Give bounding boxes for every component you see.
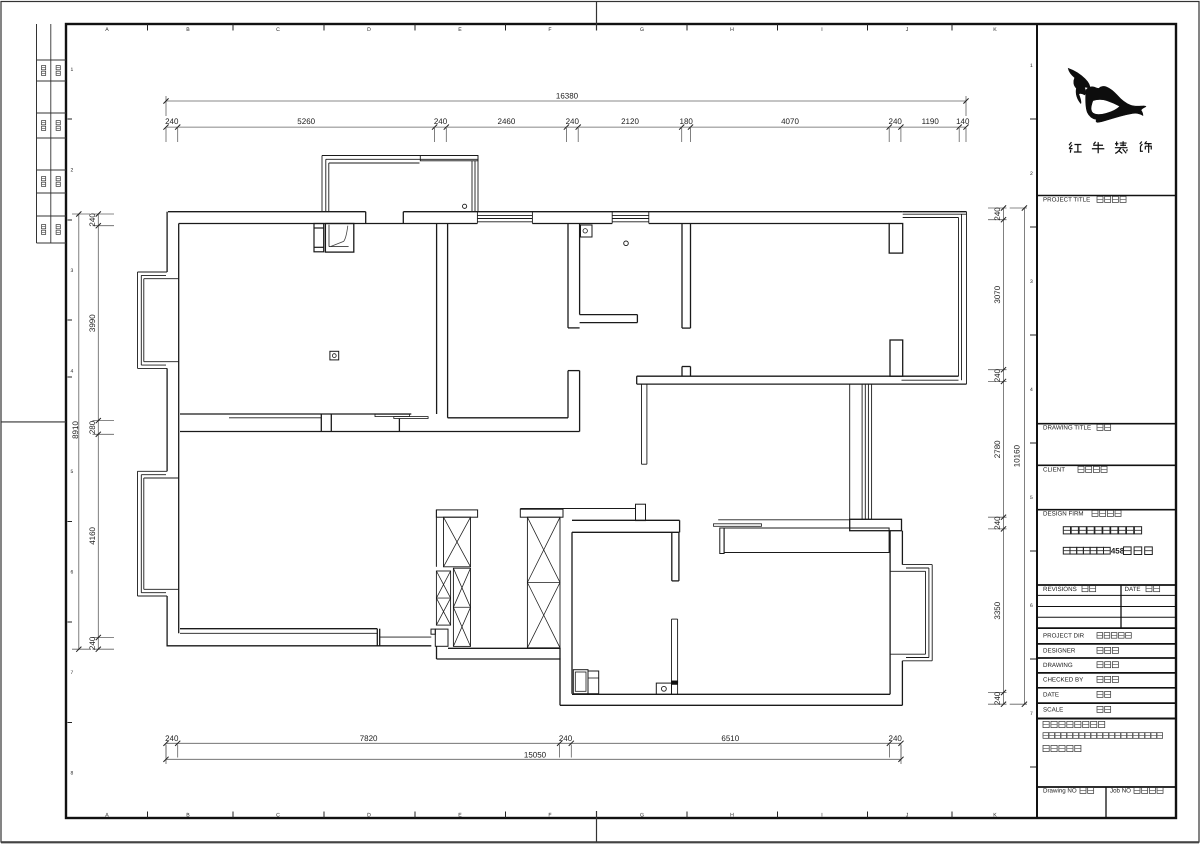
svg-text:K: K [993, 813, 997, 819]
svg-text:240: 240 [559, 734, 573, 743]
svg-text:DESIGNER: DESIGNER [1043, 648, 1076, 655]
svg-text:PROJECT DIR: PROJECT DIR [1043, 633, 1085, 640]
svg-text:D: D [367, 27, 371, 33]
svg-text:15050: 15050 [524, 750, 547, 759]
svg-text:2120: 2120 [621, 117, 639, 126]
svg-text:3: 3 [1030, 279, 1033, 285]
svg-text:I: I [821, 813, 822, 819]
svg-text:C: C [276, 813, 280, 819]
svg-text:2: 2 [71, 168, 74, 174]
svg-text:A: A [105, 27, 109, 33]
svg-text:3070: 3070 [993, 285, 1002, 303]
svg-text:J: J [906, 27, 909, 33]
svg-text:J: J [906, 813, 909, 819]
svg-text:CHECKED BY: CHECKED BY [1043, 677, 1083, 684]
svg-text:G: G [640, 813, 644, 819]
svg-text:240: 240 [165, 117, 179, 126]
svg-text:SCALE: SCALE [1043, 707, 1063, 714]
svg-text:240: 240 [434, 117, 448, 126]
svg-text:8910: 8910 [71, 421, 80, 439]
svg-text:I: I [821, 27, 822, 33]
svg-text:Drawing NO: Drawing NO [1043, 788, 1077, 795]
svg-text:1: 1 [71, 67, 74, 73]
svg-text:CLIENT: CLIENT [1043, 467, 1065, 474]
svg-text:240: 240 [993, 368, 1002, 382]
svg-text:280: 280 [88, 420, 97, 434]
svg-text:6: 6 [71, 570, 74, 576]
svg-text:16380: 16380 [556, 92, 579, 101]
svg-text:E: E [458, 813, 462, 819]
svg-text:DRAWING: DRAWING [1043, 662, 1073, 669]
svg-text:5260: 5260 [297, 117, 315, 126]
svg-text:A: A [105, 813, 109, 819]
svg-text:H: H [730, 27, 734, 33]
svg-text:5: 5 [71, 469, 74, 475]
svg-text:Job NO: Job NO [1110, 788, 1131, 795]
svg-text:DATE: DATE [1125, 586, 1141, 593]
svg-text:240: 240 [889, 734, 903, 743]
svg-text:240: 240 [993, 207, 1002, 221]
svg-text:1: 1 [1030, 63, 1033, 69]
svg-text:7820: 7820 [360, 734, 378, 743]
svg-text:240: 240 [165, 734, 179, 743]
svg-text:8: 8 [71, 771, 74, 777]
svg-text:140: 140 [956, 117, 970, 126]
svg-text:5: 5 [1030, 495, 1033, 501]
svg-text:E: E [458, 27, 462, 33]
svg-text:240: 240 [889, 117, 903, 126]
svg-text:F: F [548, 27, 551, 33]
svg-text:DATE: DATE [1043, 692, 1059, 699]
svg-text:240: 240 [88, 213, 97, 227]
svg-text:6: 6 [1030, 603, 1033, 609]
svg-text:2: 2 [1030, 171, 1033, 177]
svg-text:240: 240 [88, 636, 97, 650]
svg-text:240: 240 [993, 691, 1002, 705]
svg-text:B: B [186, 27, 190, 33]
svg-text:F: F [548, 813, 551, 819]
svg-text:4160: 4160 [88, 526, 97, 544]
svg-text:4: 4 [1030, 387, 1033, 393]
svg-text:D: D [367, 813, 371, 819]
svg-text:3990: 3990 [88, 314, 97, 332]
svg-text:1190: 1190 [922, 117, 940, 126]
svg-text:H: H [730, 813, 734, 819]
svg-text:PROJECT TITLE: PROJECT TITLE [1043, 197, 1090, 204]
svg-text:458: 458 [1111, 547, 1125, 556]
svg-text:3350: 3350 [993, 601, 1002, 619]
svg-text:180: 180 [680, 117, 694, 126]
svg-text:K: K [993, 27, 997, 33]
svg-text:B: B [186, 813, 190, 819]
svg-text:4070: 4070 [781, 117, 799, 126]
svg-text:C: C [276, 27, 280, 33]
svg-text:DESIGN FIRM: DESIGN FIRM [1043, 511, 1084, 518]
svg-text:240: 240 [993, 516, 1002, 530]
svg-text:2460: 2460 [498, 117, 516, 126]
svg-text:4: 4 [71, 369, 74, 375]
svg-text:G: G [640, 27, 644, 33]
svg-text:DRAWING TITLE: DRAWING TITLE [1043, 425, 1091, 432]
svg-text:10160: 10160 [1013, 444, 1022, 467]
svg-text:2780: 2780 [993, 440, 1002, 458]
svg-text:3: 3 [71, 268, 74, 274]
svg-text:6510: 6510 [721, 734, 739, 743]
svg-text:7: 7 [71, 670, 74, 676]
svg-text:REVISIONS: REVISIONS [1043, 586, 1077, 593]
svg-text:7: 7 [1030, 711, 1033, 717]
svg-text:240: 240 [566, 117, 580, 126]
